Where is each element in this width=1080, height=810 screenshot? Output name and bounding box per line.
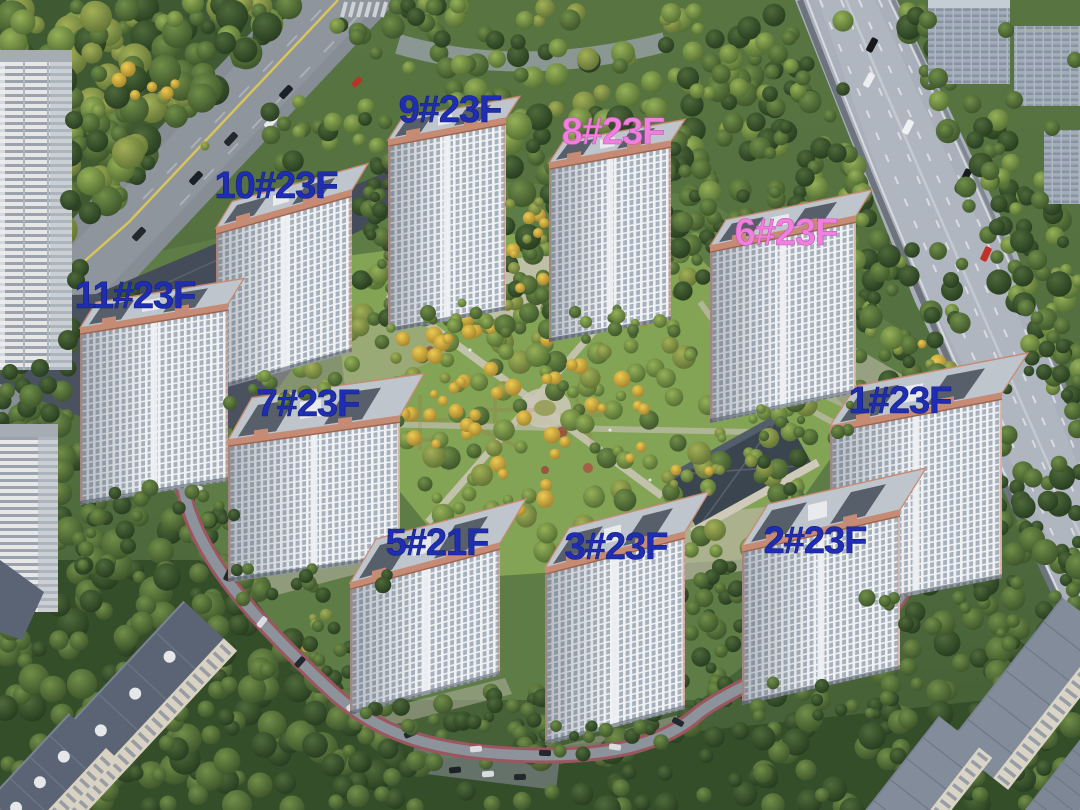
svg-text:2#23F: 2#23F (764, 520, 867, 562)
svg-text:3#23F: 3#23F (565, 526, 668, 568)
svg-text:10#23F: 10#23F (215, 165, 338, 207)
svg-text:9#23F: 9#23F (399, 89, 502, 131)
svg-text:6#23F: 6#23F (735, 212, 838, 254)
svg-text:7#23F: 7#23F (257, 383, 360, 425)
svg-text:5#21F: 5#21F (386, 522, 489, 564)
svg-text:8#23F: 8#23F (562, 111, 665, 153)
svg-text:11#23F: 11#23F (75, 275, 196, 317)
svg-text:1#23F: 1#23F (849, 380, 952, 422)
